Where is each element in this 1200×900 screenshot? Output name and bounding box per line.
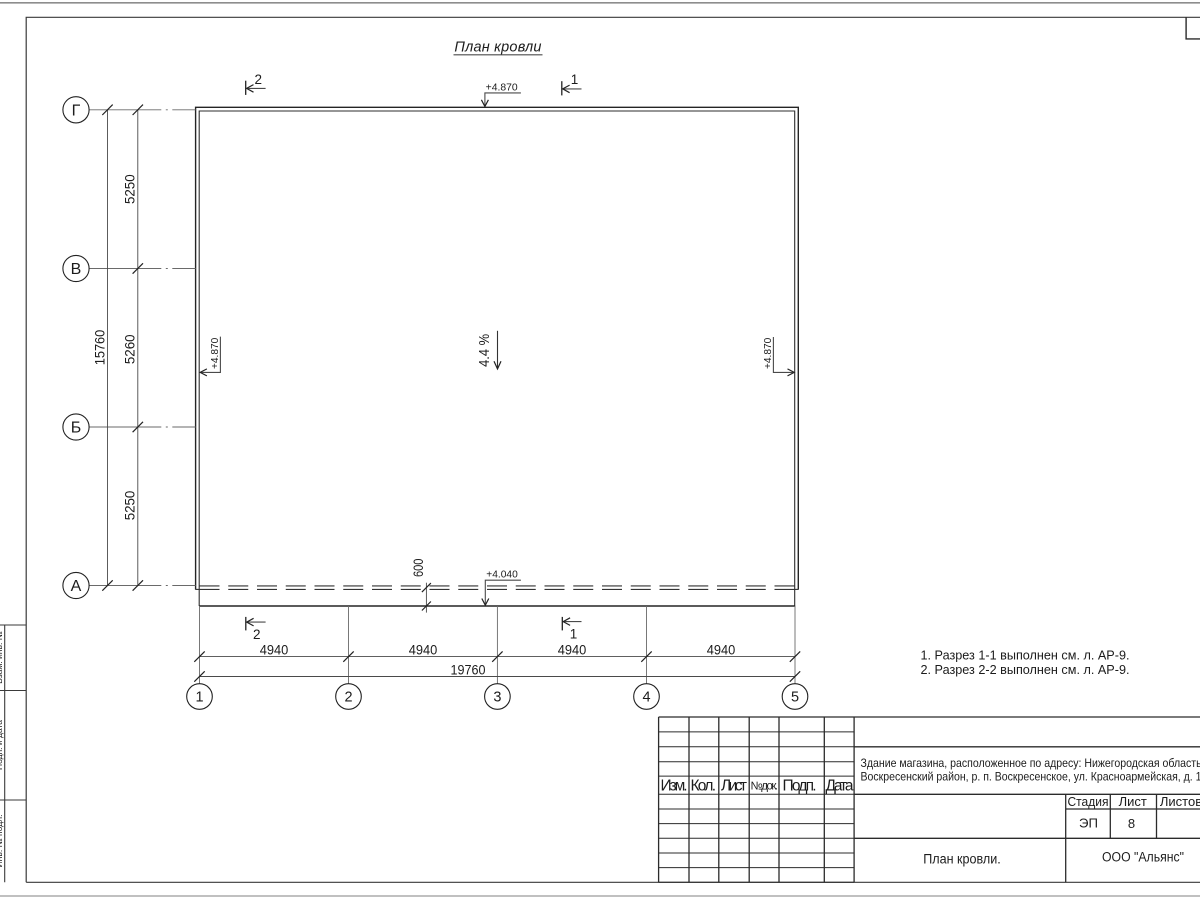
svg-text:+4.040: +4.040 (486, 569, 518, 580)
svg-text:5: 5 (791, 690, 799, 706)
svg-text:+4.870: +4.870 (763, 337, 774, 369)
svg-text:В: В (71, 261, 82, 278)
svg-text:4940: 4940 (707, 643, 736, 658)
svg-text:Лист: Лист (721, 778, 747, 795)
svg-text:1: 1 (571, 72, 579, 87)
svg-text:ООО "Альянс": ООО "Альянс" (1102, 850, 1184, 865)
svg-text:+4.870: +4.870 (486, 82, 518, 93)
svg-text:Подп.: Подп. (783, 778, 817, 795)
svg-text:4.4 %: 4.4 % (477, 334, 493, 367)
svg-text:600: 600 (410, 558, 426, 577)
svg-text:2: 2 (344, 690, 352, 706)
svg-text:19760: 19760 (451, 663, 486, 678)
svg-text:5250: 5250 (122, 491, 137, 521)
svg-text:+4.870: +4.870 (210, 337, 221, 369)
svg-text:План кровли.: План кровли. (923, 852, 1001, 867)
svg-text:5260: 5260 (122, 335, 137, 365)
svg-text:Инв. № подл.: Инв. № подл. (0, 815, 4, 868)
svg-text:Лист: Лист (1119, 794, 1147, 809)
svg-text:4940: 4940 (409, 643, 438, 658)
svg-text:2. Разрез 2-2 выполнен см. л.: 2. Разрез 2-2 выполнен см. л. АР-9. (921, 662, 1130, 677)
svg-text:Взам. инв. №: Взам. инв. № (0, 631, 4, 684)
svg-text:5250: 5250 (122, 174, 137, 204)
svg-text:Изм.: Изм. (661, 778, 688, 795)
svg-text:План кровли: План кровли (454, 40, 541, 56)
svg-text:Здание магазина, расположенное: Здание магазина, расположенное по адресу… (861, 756, 1200, 770)
svg-text:15760: 15760 (93, 330, 108, 366)
svg-text:Подп. и дата: Подп. и дата (0, 720, 4, 770)
svg-text:1. Разрез 1-1 выполнен см. л.: 1. Разрез 1-1 выполнен см. л. АР-9. (921, 648, 1130, 663)
svg-text:4940: 4940 (558, 643, 587, 658)
svg-text:Воскресенский район, р. п. Вос: Воскресенский район, р. п. Воскресенское… (861, 770, 1200, 784)
svg-text:2: 2 (255, 72, 263, 87)
svg-text:Г: Г (72, 103, 81, 120)
svg-text:1: 1 (570, 627, 578, 642)
svg-text:ЭП: ЭП (1079, 815, 1098, 830)
svg-text:Листов: Листов (1160, 794, 1200, 809)
svg-text:1: 1 (195, 690, 203, 706)
svg-text:Б: Б (71, 420, 82, 437)
svg-text:2: 2 (253, 627, 261, 642)
svg-text:№док.: №док. (751, 781, 779, 793)
svg-text:Стадия: Стадия (1068, 794, 1109, 809)
svg-text:4: 4 (642, 690, 650, 706)
svg-text:Кол.: Кол. (691, 778, 717, 795)
svg-text:А: А (71, 578, 82, 595)
svg-text:3: 3 (493, 690, 501, 706)
svg-text:4940: 4940 (260, 643, 289, 658)
svg-text:Дата: Дата (826, 778, 854, 795)
svg-text:8: 8 (1128, 816, 1135, 831)
